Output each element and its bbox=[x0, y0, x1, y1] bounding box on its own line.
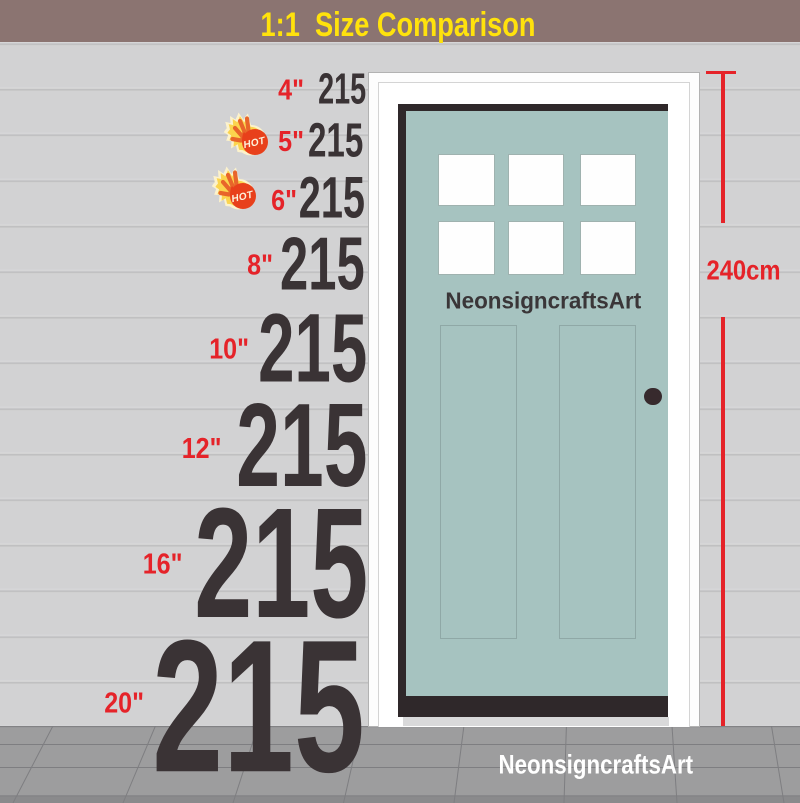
svg-text:NeonsigncraftsArt: NeonsigncraftsArt bbox=[445, 287, 641, 314]
svg-text:215: 215 bbox=[308, 112, 363, 167]
svg-text:12": 12" bbox=[182, 433, 222, 465]
svg-text:16": 16" bbox=[143, 548, 183, 580]
svg-text:215: 215 bbox=[318, 63, 366, 113]
svg-text:1:1 Size Comparison: 1:1 Size Comparison bbox=[261, 5, 536, 44]
svg-text:5": 5" bbox=[278, 126, 304, 158]
svg-text:10": 10" bbox=[209, 333, 249, 365]
svg-text:8": 8" bbox=[247, 249, 273, 281]
svg-text:215: 215 bbox=[152, 601, 365, 803]
svg-text:240cm: 240cm bbox=[706, 254, 780, 286]
svg-text:NeonsigncraftsArt: NeonsigncraftsArt bbox=[499, 751, 694, 780]
svg-text:20": 20" bbox=[104, 687, 144, 719]
svg-text:6": 6" bbox=[271, 185, 297, 217]
svg-text:4": 4" bbox=[278, 74, 304, 106]
